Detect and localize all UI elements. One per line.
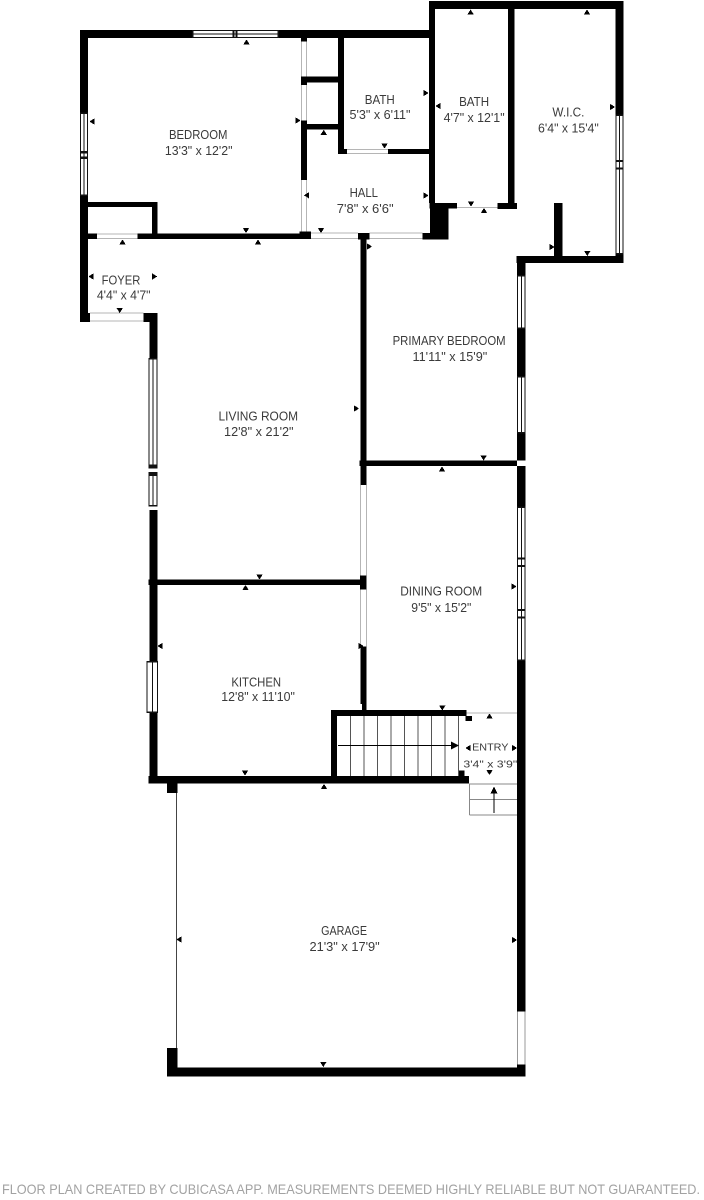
svg-text:BEDROOM: BEDROOM: [169, 127, 228, 142]
svg-text:21'3" x 17'9": 21'3" x 17'9": [309, 939, 380, 954]
svg-text:4'7" x 12'1": 4'7" x 12'1": [444, 110, 505, 125]
svg-text:9'5" x 15'2": 9'5" x 15'2": [411, 600, 471, 615]
svg-text:13'3" x 12'2": 13'3" x 12'2": [165, 143, 233, 158]
svg-text:3'4" x 3'9": 3'4" x 3'9": [463, 759, 517, 771]
svg-text:BATH: BATH: [365, 92, 395, 107]
svg-text:PRIMARY BEDROOM: PRIMARY BEDROOM: [393, 333, 506, 348]
svg-text:12'8" x 21'2": 12'8" x 21'2": [224, 424, 294, 439]
svg-text:DINING ROOM: DINING ROOM: [400, 584, 482, 599]
svg-text:ENTRY: ENTRY: [472, 742, 508, 754]
svg-text:11'11" x 15'9": 11'11" x 15'9": [413, 349, 488, 364]
svg-text:4'4" x 4'7": 4'4" x 4'7": [97, 288, 151, 303]
svg-text:GARAGE: GARAGE: [321, 923, 367, 938]
svg-text:W.I.C.: W.I.C.: [552, 105, 584, 120]
svg-text:7'8" x 6'6": 7'8" x 6'6": [337, 201, 394, 216]
svg-text:HALL: HALL: [350, 185, 378, 200]
svg-text:KITCHEN: KITCHEN: [231, 675, 281, 690]
svg-text:FOYER: FOYER: [102, 272, 141, 287]
svg-text:6'4" x 15'4": 6'4" x 15'4": [538, 121, 599, 136]
svg-text:FLOOR PLAN CREATED BY CUBICASA: FLOOR PLAN CREATED BY CUBICASA APP. MEAS…: [2, 1181, 700, 1197]
svg-text:BATH: BATH: [459, 94, 489, 109]
svg-text:12'8" x 11'10": 12'8" x 11'10": [221, 689, 295, 704]
svg-text:5'3" x 6'11": 5'3" x 6'11": [350, 107, 411, 122]
svg-text:LIVING ROOM: LIVING ROOM: [219, 409, 299, 424]
